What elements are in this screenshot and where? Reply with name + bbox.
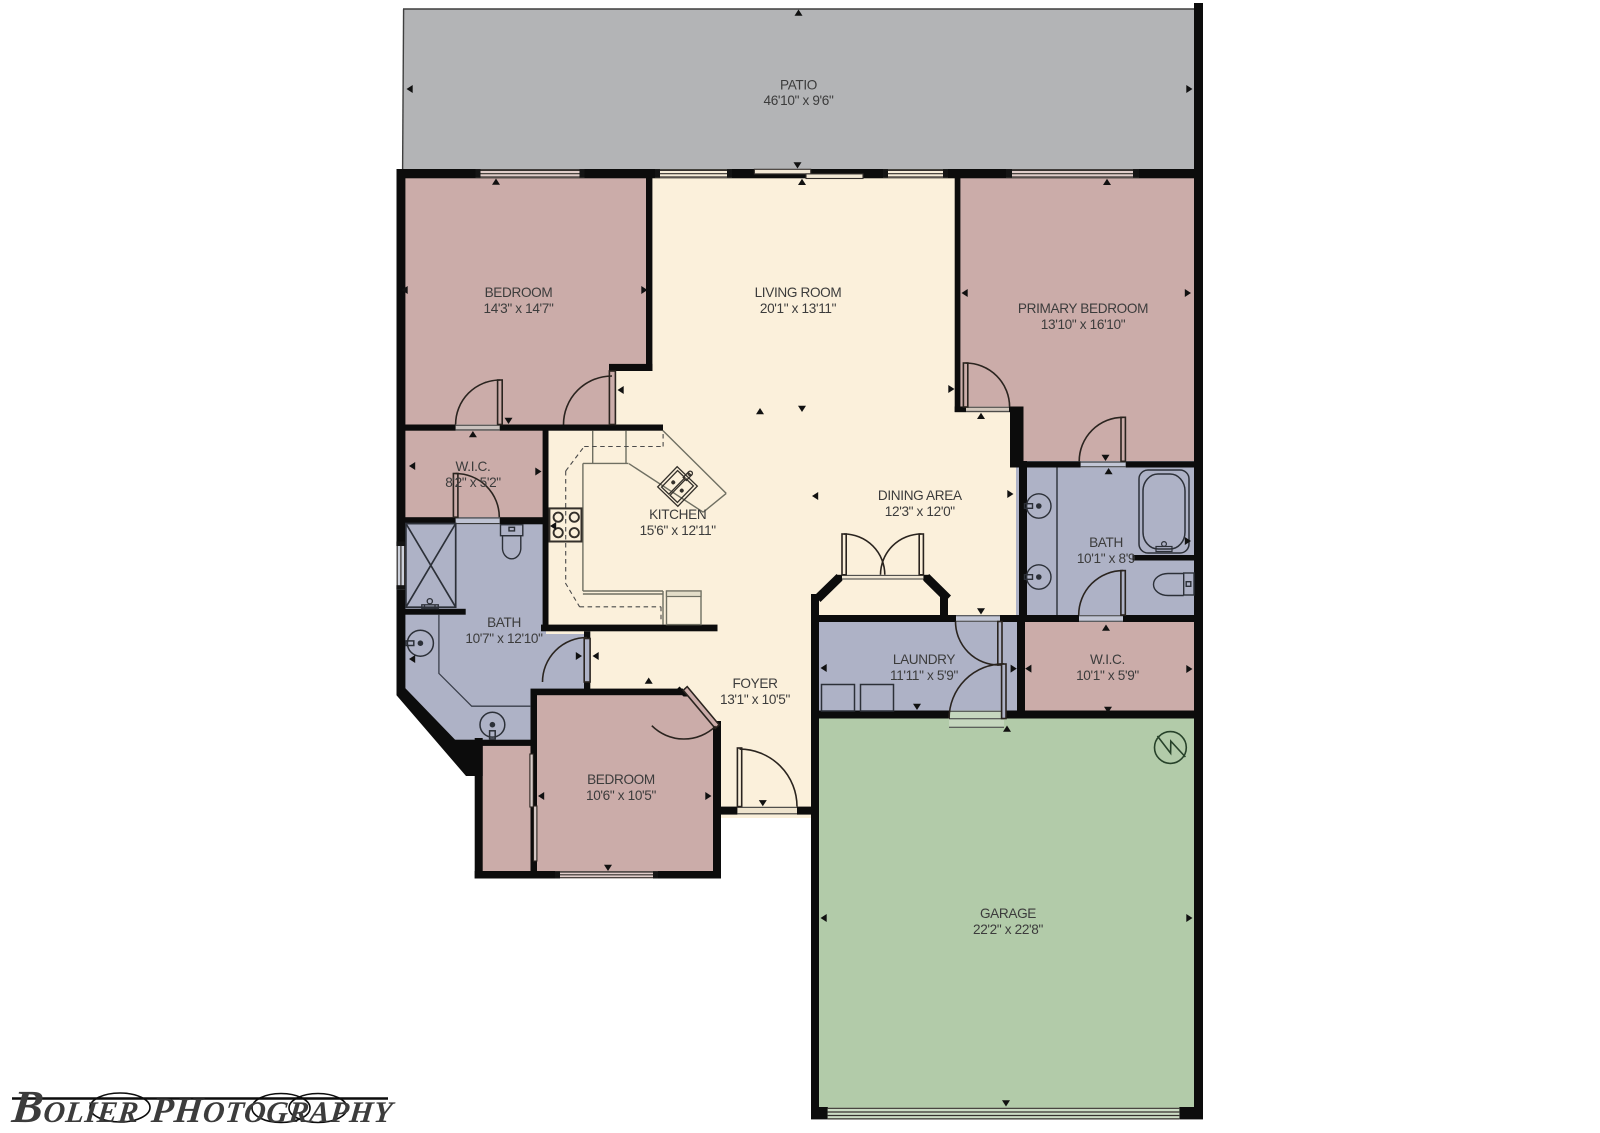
svg-text:W.I.C.: W.I.C. [1090, 652, 1125, 667]
svg-text:12'3" x 12'0": 12'3" x 12'0" [885, 504, 956, 519]
svg-text:BEDROOM: BEDROOM [587, 772, 655, 787]
svg-text:PRIMARY BEDROOM: PRIMARY BEDROOM [1018, 301, 1148, 316]
svg-text:8'2" x 5'2": 8'2" x 5'2" [445, 475, 501, 490]
svg-text:13'10" x 16'10": 13'10" x 16'10" [1041, 317, 1126, 332]
svg-text:BATH: BATH [1089, 535, 1123, 550]
svg-text:20'1" x 13'11": 20'1" x 13'11" [760, 301, 837, 316]
svg-text:11'11" x 5'9": 11'11" x 5'9" [890, 668, 959, 683]
svg-text:BEDROOM: BEDROOM [485, 285, 553, 300]
svg-text:W.I.C.: W.I.C. [456, 459, 491, 474]
svg-text:FOYER: FOYER [732, 676, 778, 691]
svg-text:LIVING ROOM: LIVING ROOM [755, 285, 842, 300]
svg-text:14'3" x 14'7": 14'3" x 14'7" [483, 301, 554, 316]
svg-text:46'10" x 9'6": 46'10" x 9'6" [763, 93, 834, 108]
svg-text:KITCHEN: KITCHEN [649, 507, 706, 522]
svg-text:10'7" x 12'10": 10'7" x 12'10" [465, 631, 543, 646]
svg-text:PATIO: PATIO [780, 78, 817, 93]
svg-text:10'1" x 8'9: 10'1" x 8'9 [1077, 551, 1135, 566]
svg-text:GARAGE: GARAGE [980, 906, 1036, 921]
svg-text:BATH: BATH [487, 615, 521, 630]
svg-text:15'6" x 12'11": 15'6" x 12'11" [640, 523, 717, 538]
svg-text:10'6" x 10'5": 10'6" x 10'5" [586, 788, 657, 803]
svg-text:10'1" x 5'9": 10'1" x 5'9" [1076, 668, 1139, 683]
svg-text:DINING AREA: DINING AREA [878, 488, 963, 503]
svg-text:22'2" x 22'8": 22'2" x 22'8" [973, 922, 1044, 937]
svg-text:13'1" x 10'5": 13'1" x 10'5" [720, 692, 791, 707]
svg-text:LAUNDRY: LAUNDRY [893, 652, 956, 667]
